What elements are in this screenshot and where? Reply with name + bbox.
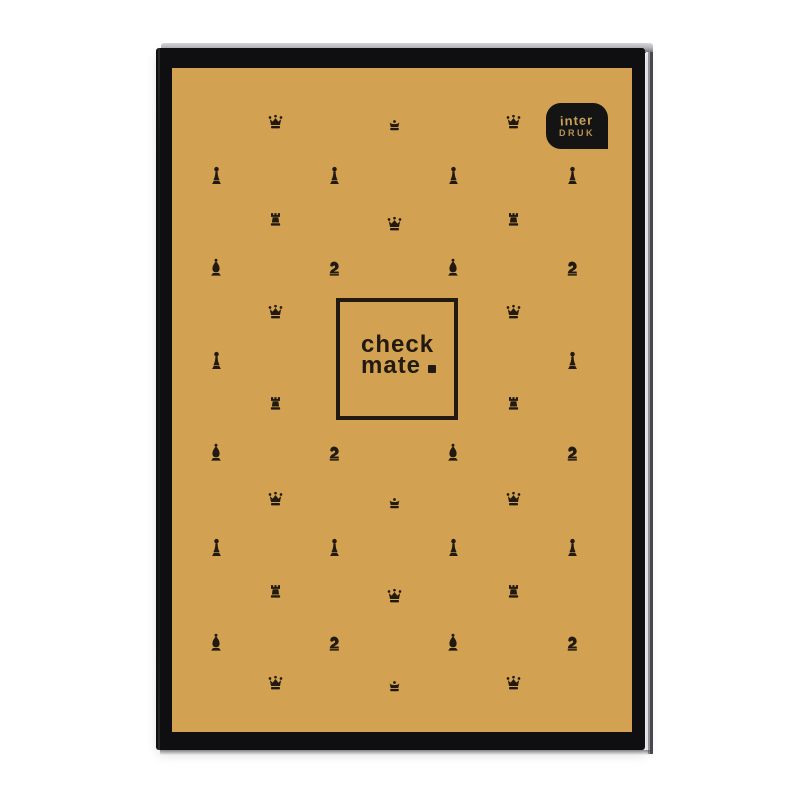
square-period-icon (428, 365, 436, 373)
back-cover-right-edge (646, 52, 654, 754)
product-photo: inter DRUK check mate (0, 0, 800, 800)
interdruk-logo: inter DRUK (546, 103, 608, 149)
back-cover-bottom-shadow (160, 750, 650, 755)
logo-text-inter: inter (560, 113, 594, 127)
title-frame: check mate (336, 298, 458, 420)
title-line-mate: mate (361, 355, 436, 376)
logo-text-druk: DRUK (559, 129, 595, 138)
cover-title: check mate (361, 334, 436, 376)
